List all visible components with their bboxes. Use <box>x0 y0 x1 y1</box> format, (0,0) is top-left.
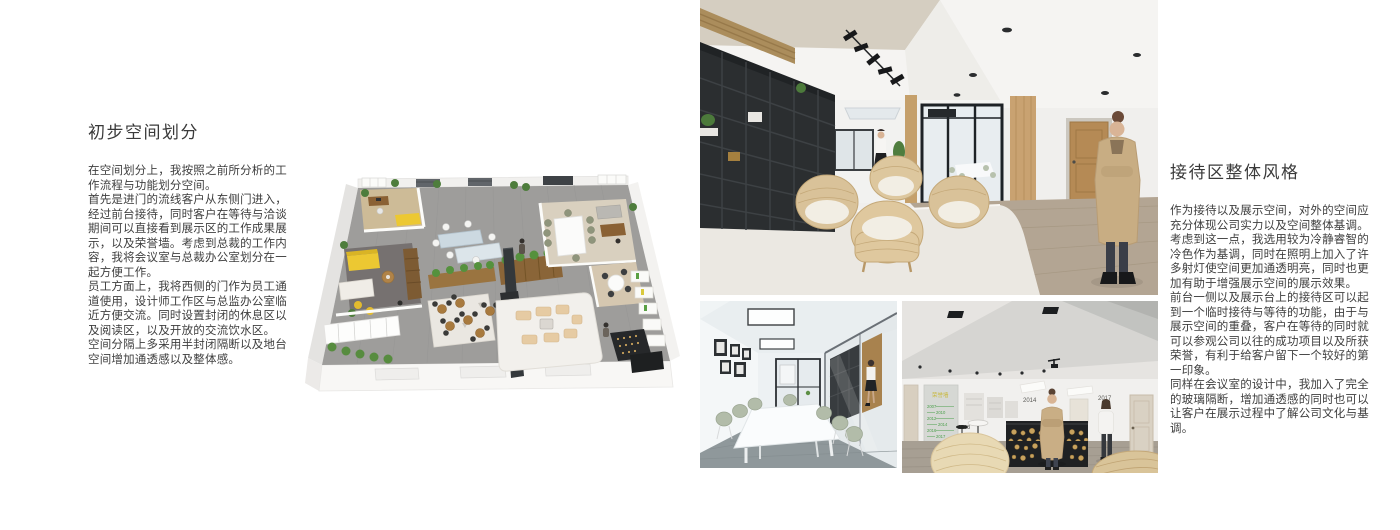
left-article-paragraph: 员工方面上，我将西侧的门作为员工通道使用，设计师工作区与总监办公室临近方便交流。… <box>88 280 291 338</box>
people-figures <box>519 239 525 255</box>
right-article-paragraph: 同样在会议室的设计中，我加入了完全的玻璃隔断，增加通透感的同时也可以让客户在展示… <box>1170 378 1377 436</box>
ceo-desk <box>600 223 626 237</box>
yellow-sofa <box>395 213 421 226</box>
svg-text:2016: 2016 <box>927 428 937 433</box>
wall-label-left: 2014 <box>1023 398 1037 404</box>
floor-plan-illustration <box>300 163 685 435</box>
platform-seating <box>496 293 602 371</box>
reception-area-svg <box>700 0 1158 295</box>
svg-text:2007: 2007 <box>927 404 937 409</box>
meeting-room-svg <box>700 301 897 468</box>
right-article: 接待区整体风格 作为接待以及展示空间，对外的空间应充分体现公司实力以及空间整体基… <box>1170 158 1377 436</box>
rattan-chair <box>870 156 922 200</box>
right-door <box>1130 395 1153 459</box>
left-article-paragraph: 首先是进门的流线客户从东侧门进入，经过前台接待，同时客户在等待与洽谈期间可以直接… <box>88 193 291 280</box>
reception-area-photo <box>700 0 1158 295</box>
left-article-paragraph: 空间分隔上多采用半封闭隔断以及地台空间增加通透感以及整体感。 <box>88 338 291 367</box>
left-door <box>904 385 918 443</box>
rattan-chair <box>796 175 858 229</box>
right-article-paragraph: 考虑到这一点，我选用较为冷静睿智的冷色作为基调，同时在照明上加入了许多射灯使空间… <box>1170 233 1377 291</box>
director-office <box>590 262 644 307</box>
svg-text:2014: 2014 <box>938 422 948 427</box>
wood-panel <box>1010 96 1036 203</box>
floor-plan-svg <box>300 163 685 435</box>
right-article-paragraph: 作为接待以及展示空间，对外的空间应充分体现公司实力以及空间整体基调。 <box>1170 204 1377 233</box>
reception-desk-svg: 荣誉墙 2007 2010 2012 2014 2016 2017 <box>902 301 1158 473</box>
private-office <box>360 188 424 231</box>
rattan-chair <box>929 176 989 228</box>
left-article-paragraph: 在空间划分上，我按照之前所分析的工作流程与功能划分空间。 <box>88 164 291 193</box>
timeline-title: 荣誉墙 <box>932 391 949 399</box>
gray-sofa <box>596 205 622 219</box>
meeting-room-photo <box>700 301 897 468</box>
ceiling <box>902 301 1158 381</box>
portfolio-page: 初步空间划分 在空间划分上，我按照之前所分析的工作流程与功能划分空间。 首先是进… <box>0 0 1400 530</box>
reception-desk-photo: 荣誉墙 2007 2010 2012 2014 2016 2017 <box>902 301 1158 473</box>
svg-text:2017: 2017 <box>936 434 946 439</box>
left-article-title: 初步空间划分 <box>88 118 291 143</box>
svg-text:2010: 2010 <box>936 410 946 415</box>
rattan-chair <box>851 201 923 272</box>
right-article-title: 接待区整体风格 <box>1170 158 1377 183</box>
left-article: 初步空间划分 在空间划分上，我按照之前所分析的工作流程与功能划分空间。 首先是进… <box>88 118 291 367</box>
conference-room <box>540 199 637 266</box>
yellow-sofa <box>347 253 380 271</box>
right-article-paragraph: 前台一侧以及展示台上的接待区可以起到一个临时接待与等待的功能，由于与展示空间的重… <box>1170 291 1377 378</box>
svg-text:2012: 2012 <box>927 416 937 421</box>
white-sofa <box>339 279 374 300</box>
